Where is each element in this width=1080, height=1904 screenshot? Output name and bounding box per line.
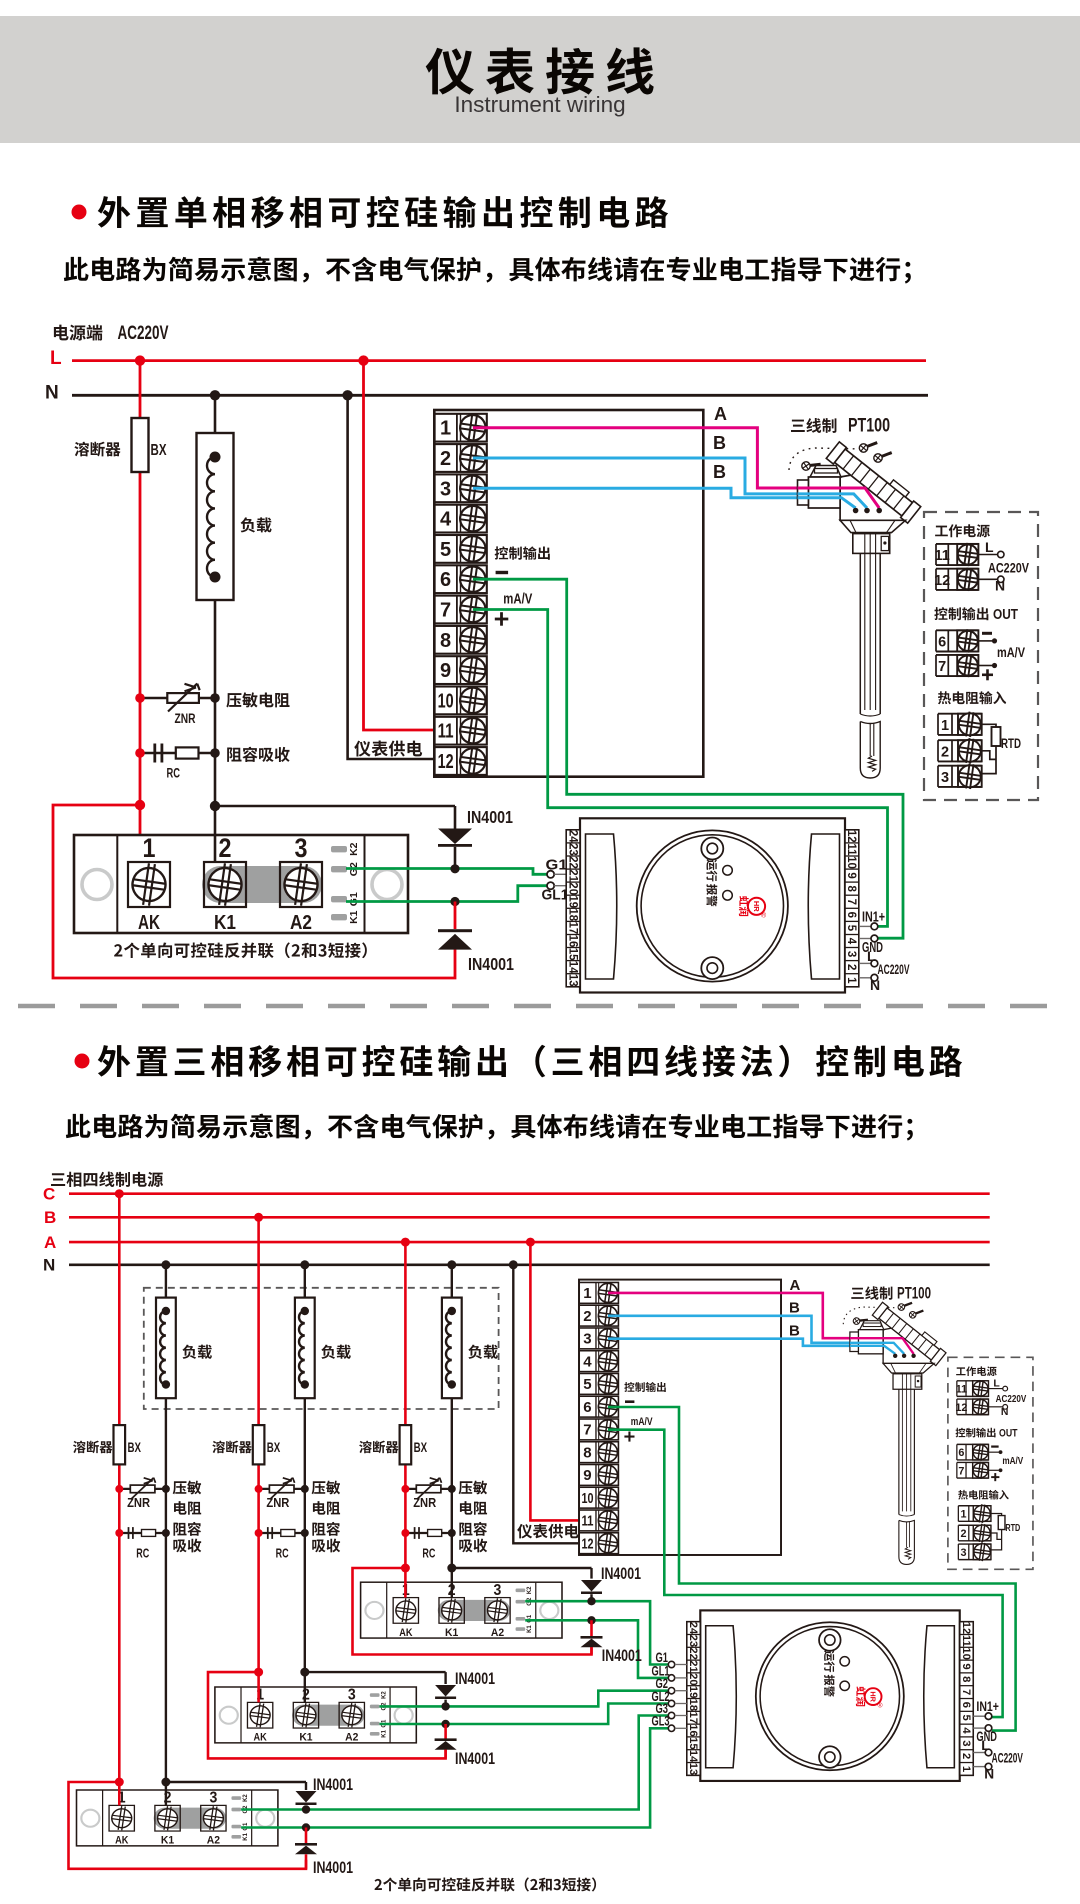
svg-text:HR: HR [869,1691,878,1702]
svg-text:A: A [790,1277,801,1294]
svg-text:RC: RC [136,1547,149,1561]
svg-text:AC220V: AC220V [118,323,169,344]
svg-text:IN1+: IN1+ [976,1699,999,1715]
svg-text:L: L [981,1738,989,1753]
svg-text:IN4001: IN4001 [455,1750,495,1768]
svg-text:B: B [44,1208,56,1227]
svg-text:B: B [789,1323,800,1340]
svg-text:GL1: GL1 [542,887,569,904]
svg-text:ZNR: ZNR [266,1496,289,1510]
svg-text:BX: BX [151,442,167,459]
svg-text:L: L [867,948,876,964]
svg-text:N: N [45,383,59,404]
svg-text:IN1+: IN1+ [862,909,885,925]
svg-text:B: B [789,1300,800,1317]
svg-text:OUT: OUT [999,1428,1018,1440]
svg-text:mA/V: mA/V [631,1416,653,1428]
svg-text:®: ® [878,1701,883,1709]
svg-text:BX: BX [128,1440,142,1455]
svg-text:RC: RC [167,766,181,781]
svg-text:IN4001: IN4001 [602,1647,642,1665]
svg-text:ZNR: ZNR [127,1496,150,1510]
svg-text:AC220V: AC220V [878,961,910,977]
svg-text:ZNR: ZNR [175,711,196,726]
svg-text:BX: BX [414,1440,428,1455]
svg-text:C: C [43,1185,55,1204]
svg-text:L: L [50,348,62,369]
svg-text:N: N [43,1256,55,1275]
svg-text:IN4001: IN4001 [455,1670,495,1688]
svg-text:IN4001: IN4001 [601,1565,641,1583]
svg-text:Instrument wiring: Instrument wiring [454,92,625,117]
svg-text:A: A [44,1233,56,1252]
svg-text:AC220V: AC220V [992,1751,1024,1766]
svg-text:ZNR: ZNR [413,1496,436,1510]
svg-text:G1: G1 [546,857,568,874]
svg-text:N: N [984,1766,994,1781]
svg-text:HR: HR [752,901,761,912]
svg-text:PT100: PT100 [848,416,890,437]
svg-text:GL3: GL3 [652,1713,670,1729]
svg-text:PT100: PT100 [897,1284,931,1303]
svg-text:IN4001: IN4001 [467,807,513,827]
svg-text:N: N [870,977,880,993]
svg-text:®: ® [761,911,767,919]
svg-text:RC: RC [276,1547,289,1561]
svg-text:B: B [713,433,726,453]
svg-text:mA/V: mA/V [503,591,532,608]
svg-text:OUT: OUT [993,607,1018,623]
svg-text:B: B [713,462,726,482]
svg-text:IN4001: IN4001 [313,1859,353,1877]
svg-text:RC: RC [422,1547,435,1561]
svg-text:IN4001: IN4001 [313,1776,353,1794]
svg-text:IN4001: IN4001 [468,954,514,974]
svg-text:A: A [714,404,727,424]
svg-text:BX: BX [267,1440,281,1455]
